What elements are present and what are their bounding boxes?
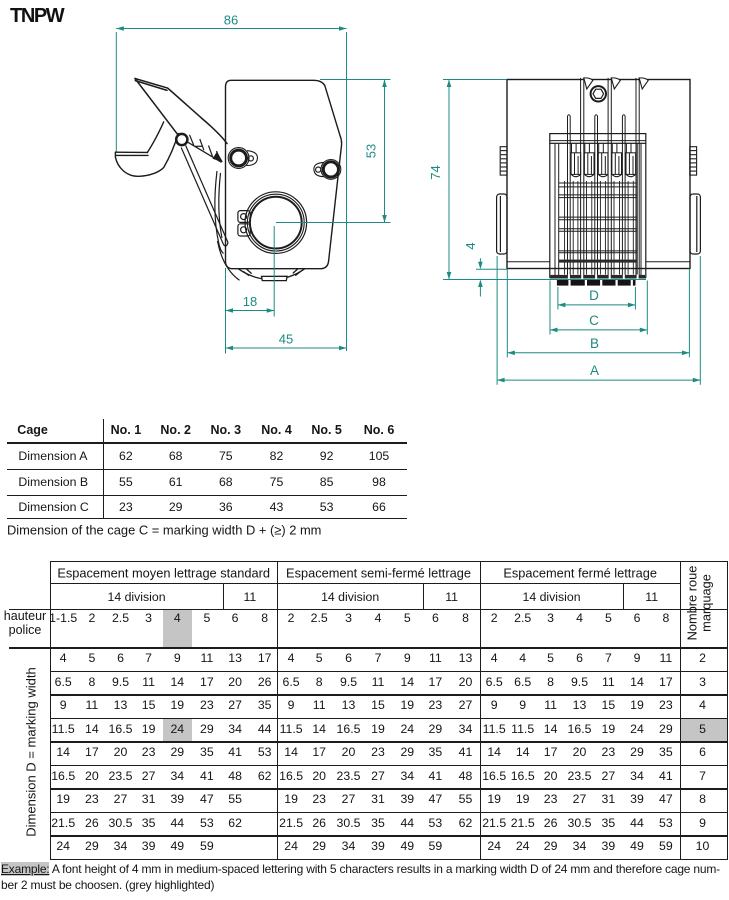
svg-text:C: C <box>589 313 599 328</box>
svg-text:53: 53 <box>364 144 379 158</box>
svg-text:B: B <box>590 336 599 351</box>
svg-text:4: 4 <box>463 242 478 249</box>
svg-text:18: 18 <box>243 294 257 309</box>
svg-text:A: A <box>590 363 599 378</box>
svg-text:45: 45 <box>279 332 293 347</box>
svg-text:74: 74 <box>428 165 443 179</box>
svg-text:D: D <box>589 288 599 303</box>
svg-text:86: 86 <box>224 13 238 28</box>
